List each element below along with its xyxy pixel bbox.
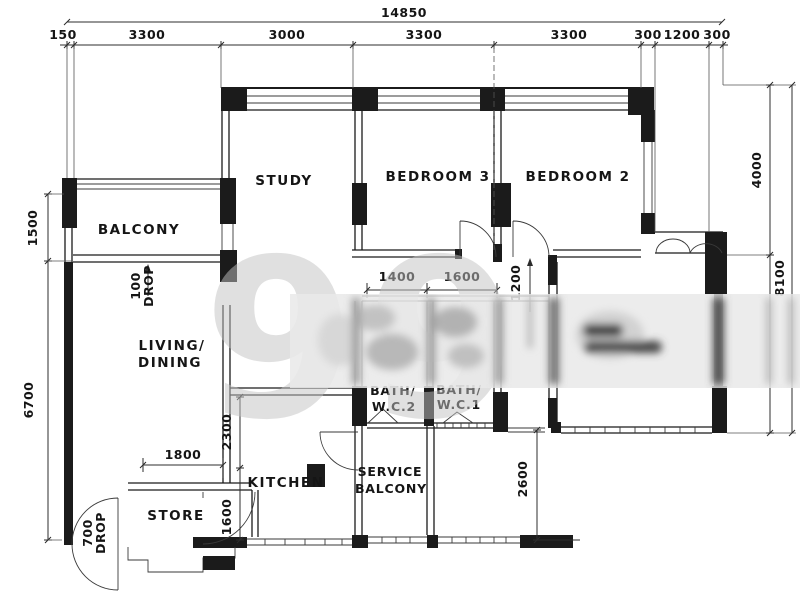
room-label-store: STORE [147, 508, 205, 524]
room-label-kitchen: KITCHEN [248, 475, 325, 491]
room-label-service-2: BALCONY [355, 481, 427, 496]
annotation-entrance-drop-2: DROP [93, 512, 108, 554]
dim-top-1200: 1200 [664, 27, 701, 42]
annotation-balcony-drop-2: DROP [141, 265, 156, 307]
dim-right-8100: 8100 [772, 260, 787, 297]
blur-band [290, 294, 800, 388]
room-label-study: STUDY [255, 173, 312, 189]
dim-left-1500: 1500 [25, 210, 40, 247]
dim-top-3300b: 3300 [406, 27, 443, 42]
dim-top-3300a: 3300 [129, 27, 166, 42]
dim-right-4000: 4000 [749, 152, 764, 189]
dim-top-300b: 300 [703, 27, 731, 42]
dim-top-3300c: 3300 [551, 27, 588, 42]
room-label-balcony: BALCONY [98, 222, 180, 238]
dim-kitchen-1600: 1600 [219, 499, 234, 536]
dim-top-3000: 3000 [269, 27, 306, 42]
room-label-bedroom3: BEDROOM 3 [385, 169, 490, 185]
dim-top-300a: 300 [634, 27, 662, 42]
floor-plan: 14850 150 3300 3000 3300 3300 300 1200 3… [0, 0, 800, 600]
dim-overall-width: 14850 [381, 5, 427, 20]
room-label-bedroom2: BEDROOM 2 [525, 169, 630, 185]
dim-store-1800: 1800 [165, 447, 202, 462]
room-label-living-1: LIVING/ [139, 338, 206, 354]
dim-top-150: 150 [49, 27, 77, 42]
room-label-living-2: DINING [138, 355, 202, 371]
dim-left-6700: 6700 [21, 382, 36, 419]
